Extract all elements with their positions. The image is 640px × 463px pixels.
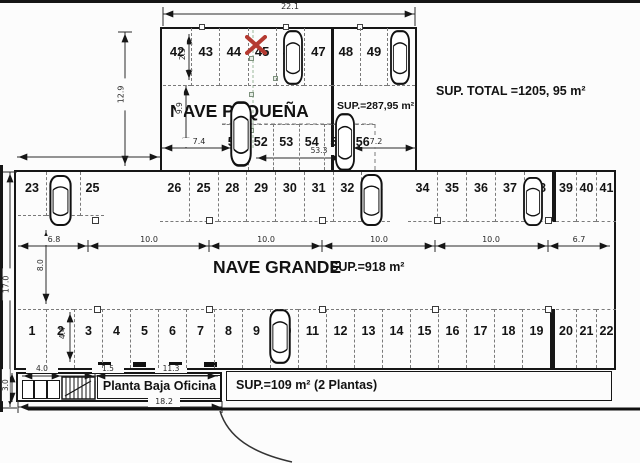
parking-spot-18: 18: [494, 309, 522, 368]
parking-spot-53: 53: [273, 124, 299, 170]
parking-spot-number: 9: [243, 310, 270, 338]
pillar-marker: [94, 306, 101, 313]
parking-spot-number: 11: [299, 310, 326, 338]
parking-spot-32: 32: [333, 172, 362, 222]
parking-spot-number: 18: [495, 310, 522, 338]
parking-spot-21: 21: [576, 309, 596, 368]
parking-spot-number: 31: [305, 172, 333, 195]
parking-spot-number: 22: [597, 310, 616, 338]
dim-chain-label: 10.0: [475, 236, 507, 245]
parking-spot-number: 43: [192, 28, 219, 58]
parking-spot-15: 15: [410, 309, 438, 368]
grande-sup-label: SUP.=918 m²: [330, 260, 404, 274]
x-mark-icon: [245, 35, 267, 55]
parking-spot-number: 37: [496, 172, 524, 195]
car-icon: [47, 174, 74, 227]
parking-spot-36: 36: [466, 172, 495, 222]
dim-chain-label: 10.0: [133, 236, 165, 245]
pillar-marker: [545, 306, 552, 313]
parking-spot-19: 19: [522, 309, 550, 368]
sup-total-label: SUP. TOTAL =1205, 95 m²: [436, 84, 586, 98]
pillar-marker: [545, 217, 552, 224]
parking-spot-20: 20: [556, 309, 576, 368]
parking-spot-49: 49: [360, 28, 388, 86]
parking-spot-25: 25: [189, 172, 218, 222]
parking-spot-number: 14: [383, 310, 410, 338]
parking-spot-22: 22: [596, 309, 616, 368]
parking-spot-54: 54: [299, 124, 325, 170]
parking-spot-number: 20: [556, 310, 576, 338]
parking-spot-number: 36: [467, 172, 495, 195]
parking-spot-number: 35: [438, 172, 466, 195]
parking-spot-number: 26: [160, 172, 189, 195]
nave-grande-title: NAVE GRANDE: [213, 257, 341, 278]
dim-chain-label: 10.0: [363, 236, 395, 245]
parking-spot-47: 47: [304, 28, 332, 86]
car-icon: [333, 112, 357, 172]
car-icon: [521, 176, 545, 227]
parking-spot-16: 16: [438, 309, 466, 368]
pillar-marker: [319, 306, 326, 313]
parking-spot-28: 28: [218, 172, 247, 222]
pillar-marker: [206, 306, 213, 313]
parking-spot-number: 1: [18, 310, 46, 338]
pillar-marker: [92, 217, 99, 224]
selection-handle: [249, 92, 254, 97]
parking-spot-2: 2: [46, 309, 74, 368]
parking-spot-number: 2: [47, 310, 74, 338]
parking-spot-7: 7: [186, 309, 214, 368]
pequena-sup-label: SUP.=287,95 m²: [337, 100, 414, 112]
dim-chain-label: 6.8: [38, 236, 70, 245]
dim-office-height: 3.0: [2, 369, 10, 401]
pillar-marker: [432, 306, 439, 313]
parking-spot-8: 8: [214, 309, 242, 368]
parking-spot-number: 8: [215, 310, 242, 338]
parking-spot-30: 30: [275, 172, 304, 222]
parking-spot-number: 29: [247, 172, 275, 195]
parking-spot-12: 12: [326, 309, 354, 368]
parking-spot-11: 11: [298, 309, 326, 368]
parking-spot-1: 1: [18, 309, 46, 368]
office-sup-label: SUP.=109 m² (2 Plantas): [236, 378, 377, 392]
dim-office-total: 18.2: [148, 398, 180, 407]
parking-spot-31: 31: [304, 172, 333, 222]
car-icon: [358, 173, 385, 227]
parking-spot-number: 30: [276, 172, 304, 195]
dim-inner-height: 8.0: [37, 249, 45, 281]
parking-spot-number: 49: [361, 28, 388, 58]
parking-spot-number: 54: [300, 125, 325, 149]
parking-spot-48: 48: [332, 28, 360, 86]
parking-spot-9: 9: [242, 309, 270, 368]
car-icon: [267, 308, 293, 365]
car-icon: [388, 29, 412, 86]
parking-spot-number: 17: [467, 310, 494, 338]
parking-spot-37: 37: [495, 172, 524, 222]
parking-spot-44: 44: [219, 28, 247, 86]
parking-spot-number: 41: [597, 172, 616, 195]
parking-spot-number: 7: [187, 310, 214, 338]
leader-line: [220, 411, 292, 462]
dim-chain-label: 10.0: [250, 236, 282, 245]
parking-spot-41: 41: [596, 172, 616, 222]
dim-left-bay: 7.4: [183, 138, 215, 147]
office-label: Planta Baja Oficina: [97, 379, 222, 393]
pillar-marker: [206, 217, 213, 224]
parking-spot-43: 43: [191, 28, 219, 86]
parking-spot-17: 17: [466, 309, 494, 368]
parking-spot-40: 40: [576, 172, 596, 222]
parking-spot-5: 5: [130, 309, 158, 368]
car-icon: [228, 100, 254, 168]
parking-spot-number: 12: [327, 310, 354, 338]
parking-spot-number: 42: [163, 28, 191, 58]
parking-spot-number: 44: [220, 28, 247, 58]
dim-pequena-height: 12.9: [118, 78, 127, 110]
parking-spot-14: 14: [382, 309, 410, 368]
dim-chain-label: 6.7: [563, 236, 595, 245]
parking-spot-number: 19: [523, 310, 550, 338]
parking-spot-number: 16: [439, 310, 466, 338]
parking-spot-number: 25: [81, 172, 104, 195]
floor-plan: NAVE PEQUEÑA SUP.=287,95 m² SUP. TOTAL =…: [0, 0, 640, 463]
dim-grande-height: 17.0: [3, 268, 12, 300]
parking-spot-39: 39: [556, 172, 576, 222]
parking-spot-number: 3: [75, 310, 102, 338]
dim-top-width: 22.1: [274, 3, 306, 12]
pillar-marker: [434, 217, 441, 224]
parking-spot-34: 34: [408, 172, 437, 222]
parking-spot-number: 15: [411, 310, 438, 338]
parking-spot-number: 6: [159, 310, 186, 338]
parking-spot-29: 29: [246, 172, 275, 222]
car-icon: [281, 29, 305, 86]
parking-spot-number: 23: [18, 172, 46, 195]
parking-spot-3: 3: [74, 309, 102, 368]
parking-spot-23: 23: [18, 172, 46, 216]
parking-spot-26: 26: [160, 172, 189, 222]
parking-spot-number: 40: [577, 172, 596, 195]
parking-spot-number: 34: [408, 172, 437, 195]
parking-spot-number: 21: [577, 310, 596, 338]
parking-spot-number: 5: [131, 310, 158, 338]
parking-spot-number: 39: [556, 172, 576, 195]
parking-spot-42: 42: [163, 28, 191, 86]
parking-spot-number: 25: [190, 172, 218, 195]
parking-spot-4: 4: [102, 309, 130, 368]
parking-spot-35: 35: [437, 172, 466, 222]
pillar-marker: [319, 217, 326, 224]
parking-spot-number: 4: [103, 310, 130, 338]
parking-spot-number: 53: [274, 125, 299, 149]
parking-spot-13: 13: [354, 309, 382, 368]
parking-spot-25: 25: [80, 172, 104, 216]
dim-pequena-lower: 9.9: [176, 92, 184, 124]
parking-spot-number: 28: [219, 172, 247, 195]
parking-spot-number: 47: [305, 28, 332, 58]
parking-spot-number: 48: [332, 28, 360, 58]
parking-spot-6: 6: [158, 309, 186, 368]
parking-spot-number: 13: [355, 310, 382, 338]
